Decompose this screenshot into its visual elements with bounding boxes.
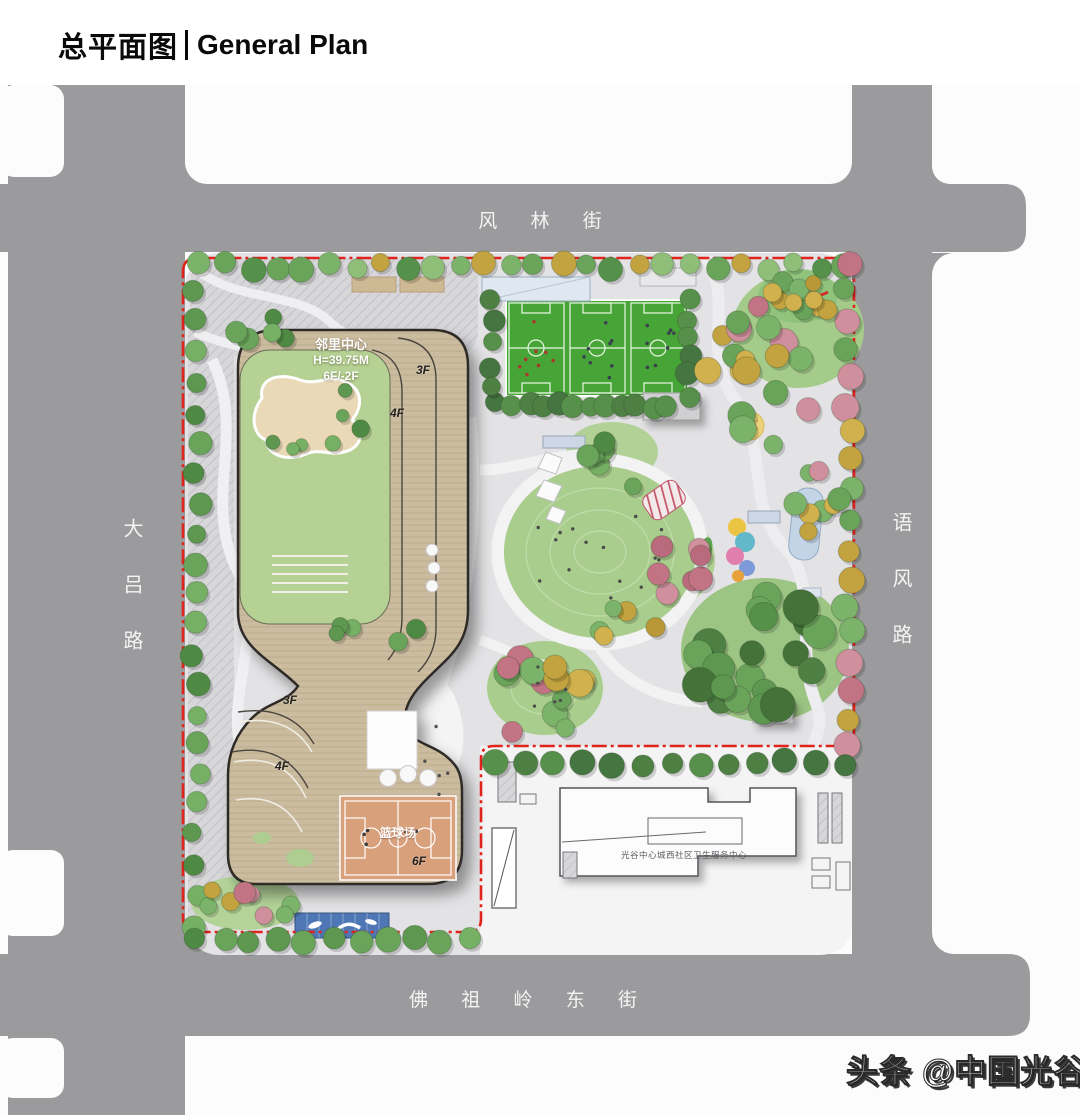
- page-title-zh: 总平面图: [58, 24, 178, 66]
- health-center-parcel: [480, 746, 852, 955]
- page-title-en: General Plan: [197, 29, 368, 61]
- rooftop-box: [367, 711, 417, 769]
- title-divider: [185, 30, 188, 60]
- north-road: [0, 184, 1026, 252]
- watermark: 头条 @中国光谷: [846, 1046, 1080, 1092]
- basketball-court: [340, 796, 456, 880]
- site-plan-map: [0, 0, 1080, 1115]
- page-title: 总平面图 General Plan: [58, 24, 368, 66]
- south-road: [0, 954, 1030, 1036]
